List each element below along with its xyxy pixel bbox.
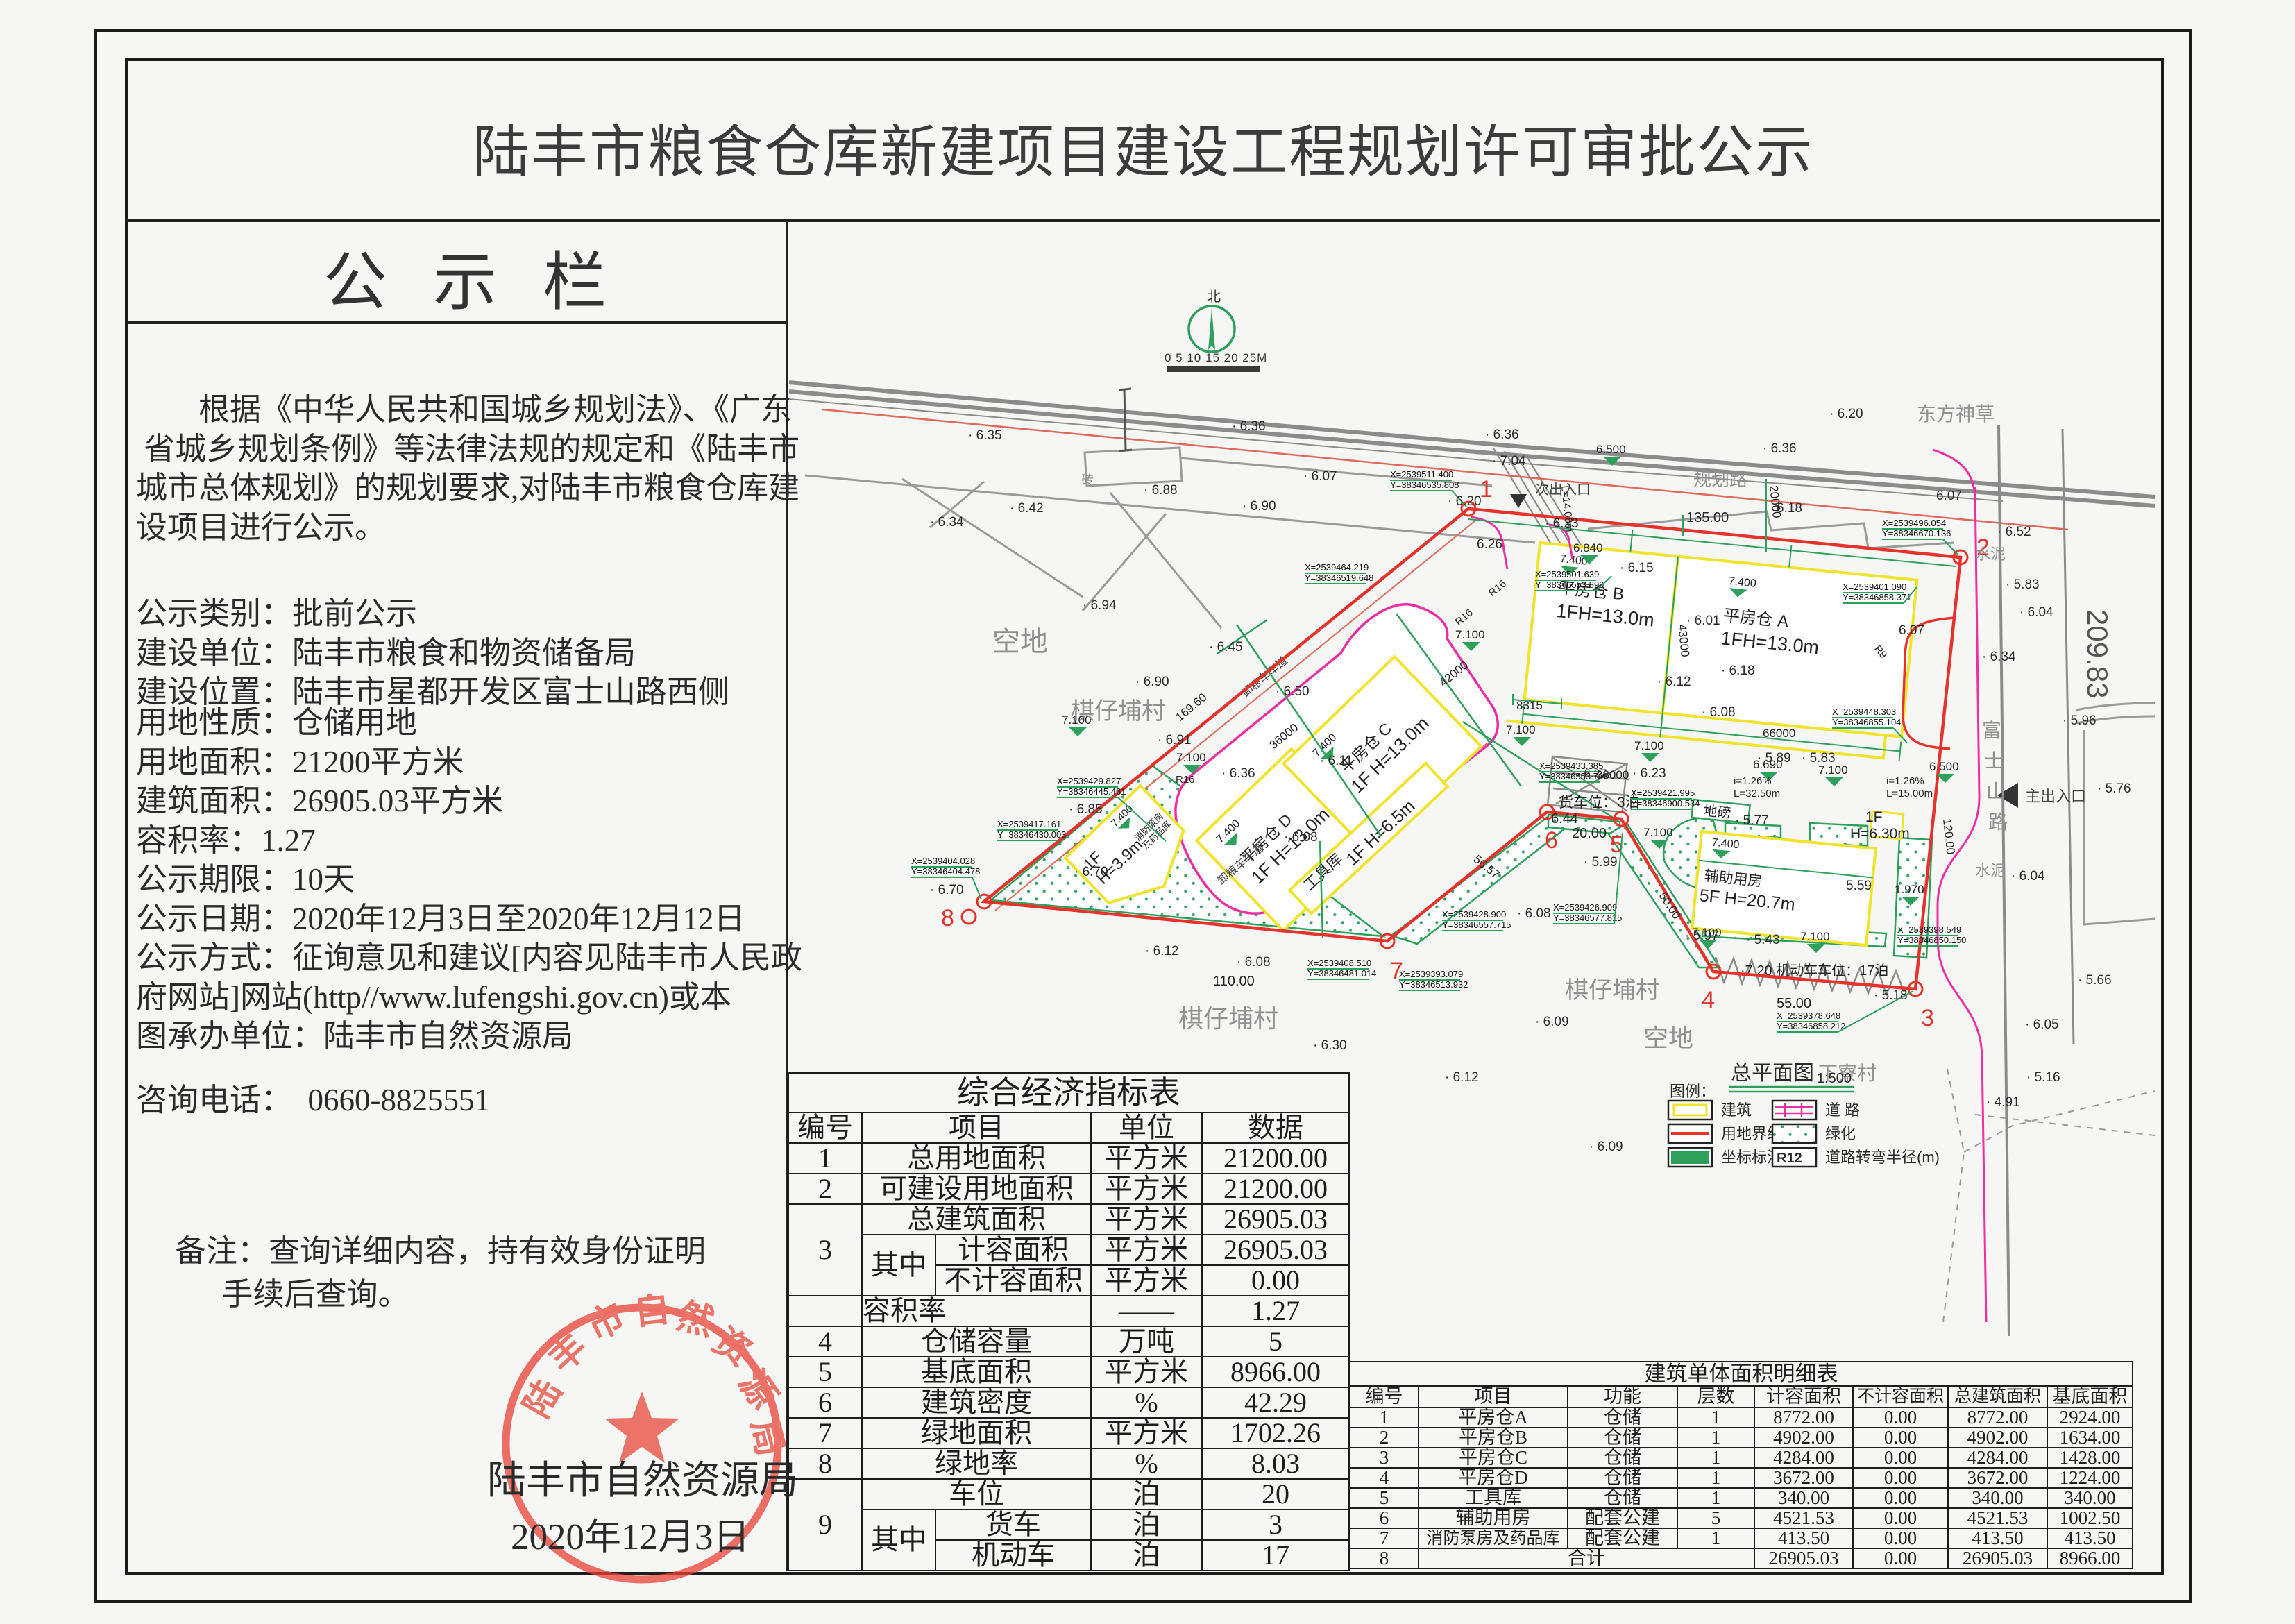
svg-text:主出入口: 主出入口 <box>2025 788 2086 805</box>
svg-text:· 5.77: · 5.77 <box>1735 813 1769 828</box>
svg-text:· 5.83: · 5.83 <box>1802 751 1836 766</box>
svg-text:38000: 38000 <box>1596 768 1629 781</box>
svg-text:· 6.52: · 6.52 <box>1997 525 2031 539</box>
svg-text:Y=38346430.003: Y=38346430.003 <box>997 829 1066 840</box>
svg-text:· 6.04: · 6.04 <box>2011 869 2045 883</box>
svg-text:· 6.05: · 6.05 <box>2025 1017 2059 1032</box>
svg-text:7.100: 7.100 <box>1455 628 1485 641</box>
svg-text:· 5.83: · 5.83 <box>2006 577 2040 592</box>
svg-text:X=2539393.079: X=2539393.079 <box>1399 969 1463 979</box>
svg-text:Y=38346519.648: Y=38346519.648 <box>1305 573 1373 583</box>
svg-text:0 5 10 15 20 25M: 0 5 10 15 20 25M <box>1165 351 1267 364</box>
svg-text:Y=38346900.534: Y=38346900.534 <box>1631 798 1700 809</box>
svg-text:8315: 8315 <box>1516 699 1543 712</box>
svg-text:· 6.88: · 6.88 <box>1144 483 1178 498</box>
svg-text:X=2539417.161: X=2539417.161 <box>997 819 1061 829</box>
svg-text:Y=38346577.815: Y=38346577.815 <box>1553 913 1622 923</box>
svg-text:Y=38346445.461: Y=38346445.461 <box>1057 786 1126 797</box>
svg-text:北: 北 <box>1207 289 1221 305</box>
svg-text:· 6.18: · 6.18 <box>1721 663 1755 678</box>
svg-text:Y=38346404.478: Y=38346404.478 <box>911 866 980 877</box>
svg-text:建筑: 建筑 <box>1721 1101 1752 1119</box>
svg-text:· 6.20: · 6.20 <box>1448 494 1482 509</box>
svg-text:Y=38346850.150: Y=38346850.150 <box>1897 935 1966 945</box>
svg-text:· 6.91: · 6.91 <box>1158 733 1192 747</box>
svg-text:· 6.90: · 6.90 <box>1135 675 1169 689</box>
svg-text:· 6.36: · 6.36 <box>1485 428 1519 442</box>
svg-text:· 6.34: · 6.34 <box>930 515 964 530</box>
svg-text:20.00: 20.00 <box>1572 826 1607 841</box>
svg-text:X=2539404.028: X=2539404.028 <box>911 856 975 866</box>
svg-text:6.07: 6.07 <box>1899 623 1924 638</box>
svg-text:Y=38346535.808: Y=38346535.808 <box>1390 480 1459 490</box>
svg-text:· 6.35: · 6.35 <box>968 428 1002 443</box>
svg-text:X=2539428.900: X=2539428.900 <box>1442 909 1506 920</box>
svg-text:· 5.96: · 5.96 <box>2063 713 2097 728</box>
svg-text:209.83: 209.83 <box>2081 609 2114 698</box>
svg-text:棋仔埔村: 棋仔埔村 <box>1565 977 1659 1004</box>
svg-text:货车位：3泊: 货车位：3泊 <box>1559 795 1640 811</box>
svg-text:· 6.85: · 6.85 <box>1069 802 1103 817</box>
svg-text:· 6.23: · 6.23 <box>1632 766 1666 781</box>
svg-text:4: 4 <box>1702 987 1715 1013</box>
svg-text:· 6.94: · 6.94 <box>1083 598 1117 613</box>
svg-text:· 6.09: · 6.09 <box>1589 1140 1623 1154</box>
svg-text:6.18: 6.18 <box>1777 501 1802 516</box>
svg-text:绿化: 绿化 <box>1825 1125 1856 1142</box>
svg-text:棋仔埔村: 棋仔埔村 <box>1178 1004 1278 1033</box>
svg-text:i=1.26%: i=1.26% <box>1886 775 1924 787</box>
svg-text:· 6.30: · 6.30 <box>1313 1038 1347 1053</box>
svg-text:R16: R16 <box>1176 774 1195 786</box>
svg-text:X=2539511.400: X=2539511.400 <box>1390 469 1453 480</box>
svg-text:· 5.99: · 5.99 <box>1584 855 1618 870</box>
svg-text:X=2539421.995: X=2539421.995 <box>1631 788 1695 798</box>
svg-text:6: 6 <box>1545 827 1558 854</box>
svg-text:i=1.26%: i=1.26% <box>1734 775 1772 787</box>
svg-text:7.100: 7.100 <box>1176 751 1206 764</box>
svg-text:R12: R12 <box>1777 1151 1802 1166</box>
svg-text:· 6.09: · 6.09 <box>1535 1015 1569 1029</box>
svg-text:8: 8 <box>941 905 954 931</box>
svg-text:X=2539501.639: X=2539501.639 <box>1535 569 1599 580</box>
svg-text:3: 3 <box>1921 1005 1934 1031</box>
svg-text:· 6.08: · 6.08 <box>1517 906 1551 921</box>
svg-text:· 6.45: · 6.45 <box>1209 640 1243 654</box>
svg-text:135.00: 135.00 <box>1686 510 1729 525</box>
svg-text:Y=38346855.104: Y=38346855.104 <box>1832 717 1901 727</box>
svg-text:道路转弯半径(m): 道路转弯半径(m) <box>1825 1149 1940 1166</box>
svg-text:· 6.34: · 6.34 <box>1982 650 2016 664</box>
svg-text:路: 路 <box>1988 811 2008 833</box>
svg-text:· 6.04: · 6.04 <box>2019 605 2053 620</box>
svg-text:· 5.66: · 5.66 <box>2078 973 2112 988</box>
svg-text:棋仔埔村: 棋仔埔村 <box>1071 698 1165 725</box>
svg-text:· 6.11: · 6.11 <box>1320 754 1353 768</box>
svg-text:X=2539408.510: X=2539408.510 <box>1307 958 1371 968</box>
svg-text:X=2539429.827: X=2539429.827 <box>1057 776 1121 786</box>
svg-text:· 6.36: · 6.36 <box>1221 766 1255 781</box>
svg-text:6.840: 6.840 <box>1573 541 1603 555</box>
svg-text:1:500: 1:500 <box>1817 1071 1852 1086</box>
svg-text:· 6.12: · 6.12 <box>1657 675 1691 689</box>
svg-text:L=15.00m: L=15.00m <box>1886 788 1933 800</box>
svg-text:士: 士 <box>1984 750 2004 772</box>
svg-text:图例：: 图例： <box>1670 1083 1716 1100</box>
svg-text:X=2539496.054: X=2539496.054 <box>1882 518 1946 528</box>
svg-text:Y=38346553.899: Y=38346553.899 <box>1535 580 1604 590</box>
svg-text:X=2539426.909: X=2539426.909 <box>1553 902 1617 913</box>
svg-text:6.44: 6.44 <box>1551 811 1578 827</box>
svg-text:· 6.70: · 6.70 <box>1074 865 1108 879</box>
svg-text:· 5.89: · 5.89 <box>1757 751 1791 766</box>
svg-text:· 6.36: · 6.36 <box>1763 441 1797 456</box>
svg-text:X=2539378.648: X=2539378.648 <box>1777 1010 1840 1021</box>
svg-text:· 6.07: · 6.07 <box>1303 469 1337 484</box>
svg-text:Y=38346557.715: Y=38346557.715 <box>1442 920 1511 930</box>
svg-text:6.500: 6.500 <box>1929 760 1959 773</box>
svg-text:7.100: 7.100 <box>1634 739 1664 752</box>
svg-text:空地: 空地 <box>1643 1024 1693 1052</box>
svg-text:水泥: 水泥 <box>1975 862 2006 879</box>
svg-text:空地: 空地 <box>992 627 1048 657</box>
svg-text:7.100: 7.100 <box>1506 723 1536 736</box>
svg-text:· 6.50: · 6.50 <box>1276 684 1310 699</box>
svg-text:· 5.16: · 5.16 <box>2026 1070 2060 1085</box>
svg-text:规划路: 规划路 <box>1693 469 1747 490</box>
svg-text:55.00: 55.00 <box>1777 996 1811 1011</box>
svg-text:7.100: 7.100 <box>1643 826 1673 839</box>
svg-text:X=2539398.549: X=2539398.549 <box>1897 924 1961 935</box>
svg-text:· 6.90: · 6.90 <box>1242 499 1276 514</box>
svg-text:· 6.23: · 6.23 <box>1545 516 1579 531</box>
svg-text:R16: R16 <box>1487 578 1509 600</box>
svg-text:东方神草: 东方神草 <box>1917 403 1995 425</box>
svg-text:· 6.20: · 6.20 <box>1829 407 1863 421</box>
svg-text:Y=38346670.136: Y=38346670.136 <box>1882 528 1951 539</box>
svg-text:5.59: 5.59 <box>1846 879 1872 893</box>
svg-text:X=2539401.090: X=2539401.090 <box>1843 582 1906 592</box>
svg-text:· 6.08: · 6.08 <box>1284 830 1318 845</box>
svg-text:· 6.12: · 6.12 <box>1445 1070 1479 1085</box>
svg-text:120.00: 120.00 <box>1940 818 1957 855</box>
svg-text:· 6.15: · 6.15 <box>1620 561 1654 575</box>
svg-text:· 6.08: · 6.08 <box>1702 705 1736 720</box>
svg-text:· 5.18: · 5.18 <box>1874 988 1908 1003</box>
svg-text:66000: 66000 <box>1763 727 1795 740</box>
svg-text:6.26: 6.26 <box>1477 537 1502 552</box>
svg-text:Y=38346858.371: Y=38346858.371 <box>1843 592 1911 602</box>
svg-text:· 5.97: · 5.97 <box>1685 929 1719 943</box>
svg-text:地磅: 地磅 <box>1702 803 1731 822</box>
svg-text:· 6.42: · 6.42 <box>1010 501 1044 516</box>
svg-text:· 5.76: · 5.76 <box>2097 781 2131 796</box>
svg-text:H=6.30m: H=6.30m <box>1850 826 1910 842</box>
svg-text:水泥: 水泥 <box>1975 545 2006 563</box>
svg-text:1: 1 <box>1480 476 1493 502</box>
svg-text:Y=38346513.932: Y=38346513.932 <box>1399 979 1468 990</box>
svg-text:110.00: 110.00 <box>1213 974 1255 989</box>
svg-text:Y=38346481.014: Y=38346481.014 <box>1307 968 1376 979</box>
svg-text:· 6.08: · 6.08 <box>1237 955 1271 970</box>
svg-text:道 路: 道 路 <box>1825 1101 1860 1119</box>
svg-text:6.500: 6.500 <box>1596 443 1626 456</box>
svg-text:砖: 砖 <box>1081 473 1094 487</box>
svg-text:7.100: 7.100 <box>1800 930 1830 943</box>
svg-text:· 6.12: · 6.12 <box>1145 944 1179 958</box>
svg-text:· 4.91: · 4.91 <box>1986 1095 2020 1110</box>
svg-text:山: 山 <box>1986 781 2006 802</box>
svg-text:总平面图: 总平面图 <box>1731 1062 1814 1085</box>
svg-text:· 5.43: · 5.43 <box>1746 933 1780 947</box>
svg-text:1.970: 1.970 <box>1895 883 1924 896</box>
svg-text:Y=38346858.212: Y=38346858.212 <box>1777 1021 1845 1031</box>
svg-text:富: 富 <box>1982 720 2001 741</box>
svg-text:· 6.70: · 6.70 <box>930 883 964 897</box>
svg-text:· 6.36: · 6.36 <box>1232 419 1266 434</box>
svg-text:6.07: 6.07 <box>1936 489 1962 503</box>
svg-text:R16: R16 <box>1453 607 1475 628</box>
svg-text:· 7.04: · 7.04 <box>1492 454 1526 468</box>
svg-text:169.60: 169.60 <box>1173 691 1209 724</box>
svg-text:X=2539464.219: X=2539464.219 <box>1305 562 1369 573</box>
svg-text:1F: 1F <box>1865 809 1883 825</box>
svg-text:X=2539448.303: X=2539448.303 <box>1832 707 1896 717</box>
svg-text:· 6.01: · 6.01 <box>1686 614 1720 628</box>
svg-text:L=32.50m: L=32.50m <box>1734 788 1780 800</box>
